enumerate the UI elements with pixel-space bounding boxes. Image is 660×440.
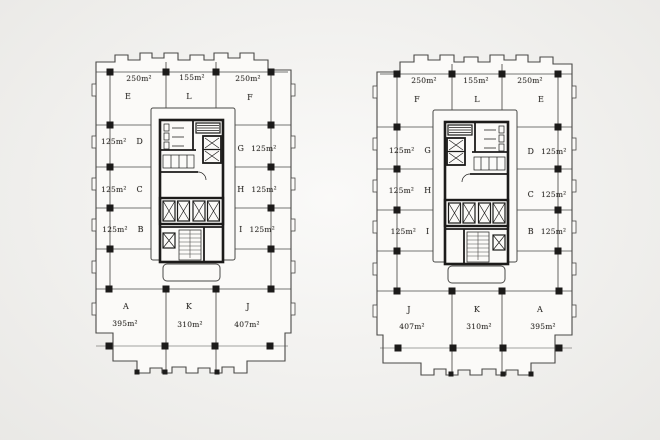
unit-letter-label: G bbox=[424, 146, 431, 156]
unit-label: H 125m² bbox=[237, 185, 277, 195]
unit-label: G 125m² bbox=[237, 144, 276, 154]
unit-letter-label: A bbox=[123, 302, 129, 312]
unit-area-label: 125m² bbox=[251, 144, 276, 154]
unit-letter-label: F bbox=[414, 95, 420, 105]
unit-letter-label: L bbox=[474, 95, 480, 105]
unit-label: D 125m² bbox=[527, 147, 566, 157]
unit-letter-label: B bbox=[138, 225, 144, 235]
unit-area-label: 250m² bbox=[517, 76, 542, 86]
unit-label: 125m² C bbox=[101, 185, 143, 195]
unit-letter-label: H bbox=[237, 185, 244, 195]
unit-area-label: 125m² bbox=[541, 190, 566, 200]
unit-letter-label: B bbox=[528, 227, 534, 237]
unit-letter-label: J bbox=[407, 305, 410, 315]
unit-label: B 125m² bbox=[528, 227, 567, 237]
unit-letter-label: K bbox=[186, 302, 192, 312]
floorplan-page: 250m² E 155m² L 250m² F 125m² D 125m² C … bbox=[0, 0, 660, 440]
unit-label: 125m² D bbox=[101, 137, 143, 147]
unit-area-label: 125m² bbox=[541, 227, 566, 237]
unit-letter-label: C bbox=[528, 190, 534, 200]
unit-area-label: 407m² bbox=[234, 320, 259, 330]
unit-letter-label: G bbox=[237, 144, 244, 154]
unit-area-label: 125m² bbox=[251, 185, 276, 195]
unit-label: 125m² H bbox=[389, 186, 432, 196]
unit-area-label: 250m² bbox=[411, 76, 436, 86]
unit-letter-label: E bbox=[538, 95, 544, 105]
unit-letter-label: F bbox=[247, 93, 253, 103]
unit-area-label: 395m² bbox=[112, 319, 137, 329]
unit-area-label: 125m² bbox=[101, 137, 126, 147]
unit-area-label: 310m² bbox=[177, 320, 202, 330]
unit-label: 125m² I bbox=[391, 227, 430, 237]
unit-area-label: 125m² bbox=[389, 146, 414, 156]
unit-area-label: 407m² bbox=[399, 322, 424, 332]
unit-letter-label: I bbox=[426, 227, 429, 237]
unit-letter-label: D bbox=[527, 147, 534, 157]
unit-letter-label: K bbox=[474, 305, 480, 315]
unit-area-label: 125m² bbox=[101, 185, 126, 195]
unit-label: C 125m² bbox=[528, 190, 567, 200]
unit-area-label: 125m² bbox=[249, 225, 274, 235]
unit-area-label: 310m² bbox=[466, 322, 491, 332]
unit-letter-label: I bbox=[239, 225, 242, 235]
unit-area-label: 125m² bbox=[541, 147, 566, 157]
unit-letter-label: E bbox=[125, 92, 131, 102]
unit-area-label: 125m² bbox=[389, 186, 414, 196]
unit-label: I 125m² bbox=[239, 225, 275, 235]
unit-letter-label: D bbox=[136, 137, 143, 147]
unit-letter-label: A bbox=[537, 305, 543, 315]
unit-area-label: 395m² bbox=[530, 322, 555, 332]
unit-area-label: 125m² bbox=[102, 225, 127, 235]
unit-area-label: 125m² bbox=[391, 227, 416, 237]
unit-letter-label: H bbox=[424, 186, 431, 196]
unit-area-label: 250m² bbox=[126, 74, 151, 84]
unit-area-label: 155m² bbox=[179, 73, 204, 83]
unit-letter-label: C bbox=[137, 185, 143, 195]
unit-label: 125m² B bbox=[102, 225, 144, 235]
unit-area-label: 250m² bbox=[235, 74, 260, 84]
unit-letter-label: J bbox=[246, 302, 249, 312]
unit-letter-label: L bbox=[186, 92, 192, 102]
unit-area-label: 155m² bbox=[463, 76, 488, 86]
floorplans-canvas bbox=[0, 0, 660, 440]
unit-label: 125m² G bbox=[389, 146, 431, 156]
